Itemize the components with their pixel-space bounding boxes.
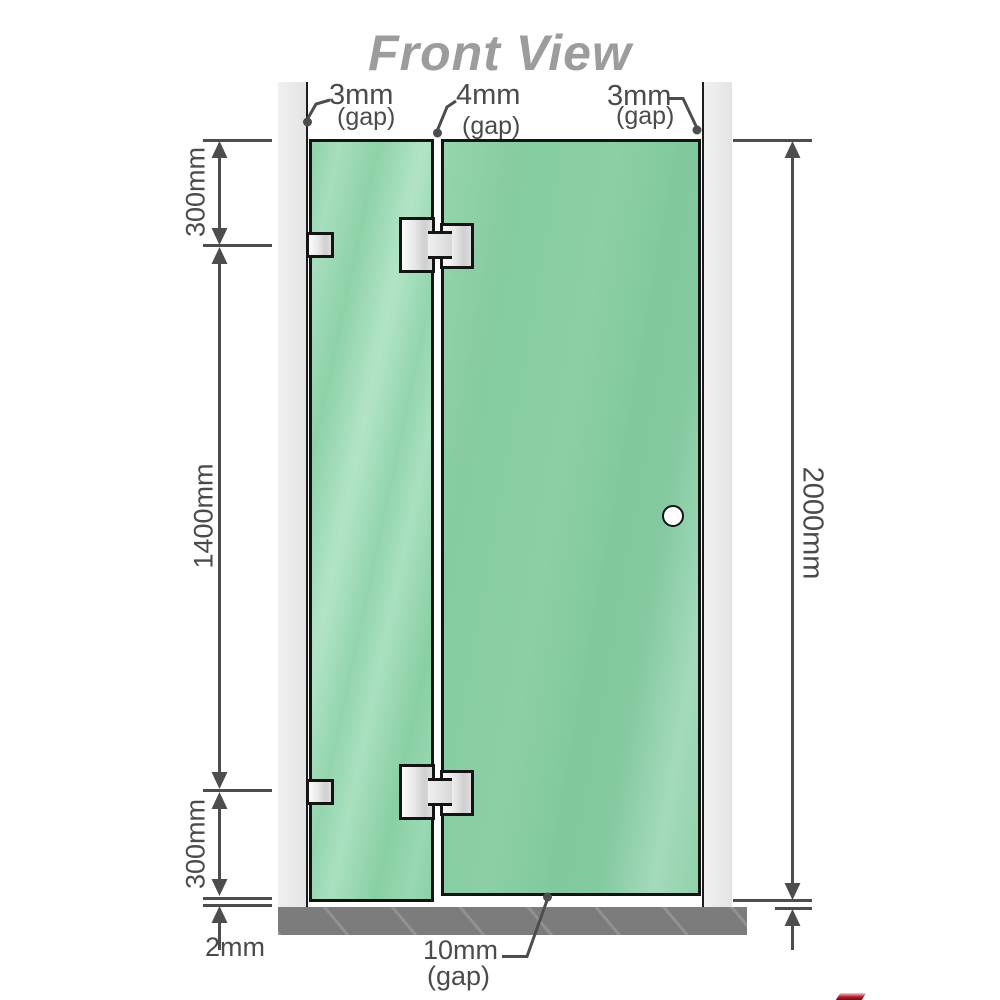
dimension-lines bbox=[0, 0, 1000, 1000]
label-gap-top-left-qualifier: (gap) bbox=[337, 105, 395, 130]
label-dim-left-bottom: 300mm bbox=[183, 799, 210, 889]
hinge-top-bridge bbox=[428, 231, 452, 259]
wall-bracket-bottom bbox=[306, 779, 334, 805]
wall-bracket-top bbox=[306, 232, 334, 258]
shower-screen-front-view-diagram: Front View bbox=[0, 0, 1000, 1000]
label-gap-top-middle-value: 4mm bbox=[456, 81, 520, 110]
label-dim-left-middle: 1400mm bbox=[191, 463, 218, 568]
label-dim-bottom-left: 2mm bbox=[205, 934, 265, 961]
label-gap-bottom-value: 10mm bbox=[423, 937, 498, 964]
label-dim-left-top: 300mm bbox=[183, 147, 210, 237]
label-dim-right-height: 2000mm bbox=[798, 467, 827, 580]
door-knob bbox=[662, 505, 684, 527]
hinge-bottom-bridge bbox=[428, 778, 452, 806]
label-gap-top-middle-qualifier: (gap) bbox=[462, 114, 520, 139]
label-gap-top-right-qualifier: (gap) bbox=[616, 104, 674, 129]
label-gap-bottom-qualifier: (gap) bbox=[427, 963, 490, 990]
corner-logo-mark bbox=[836, 993, 866, 1000]
